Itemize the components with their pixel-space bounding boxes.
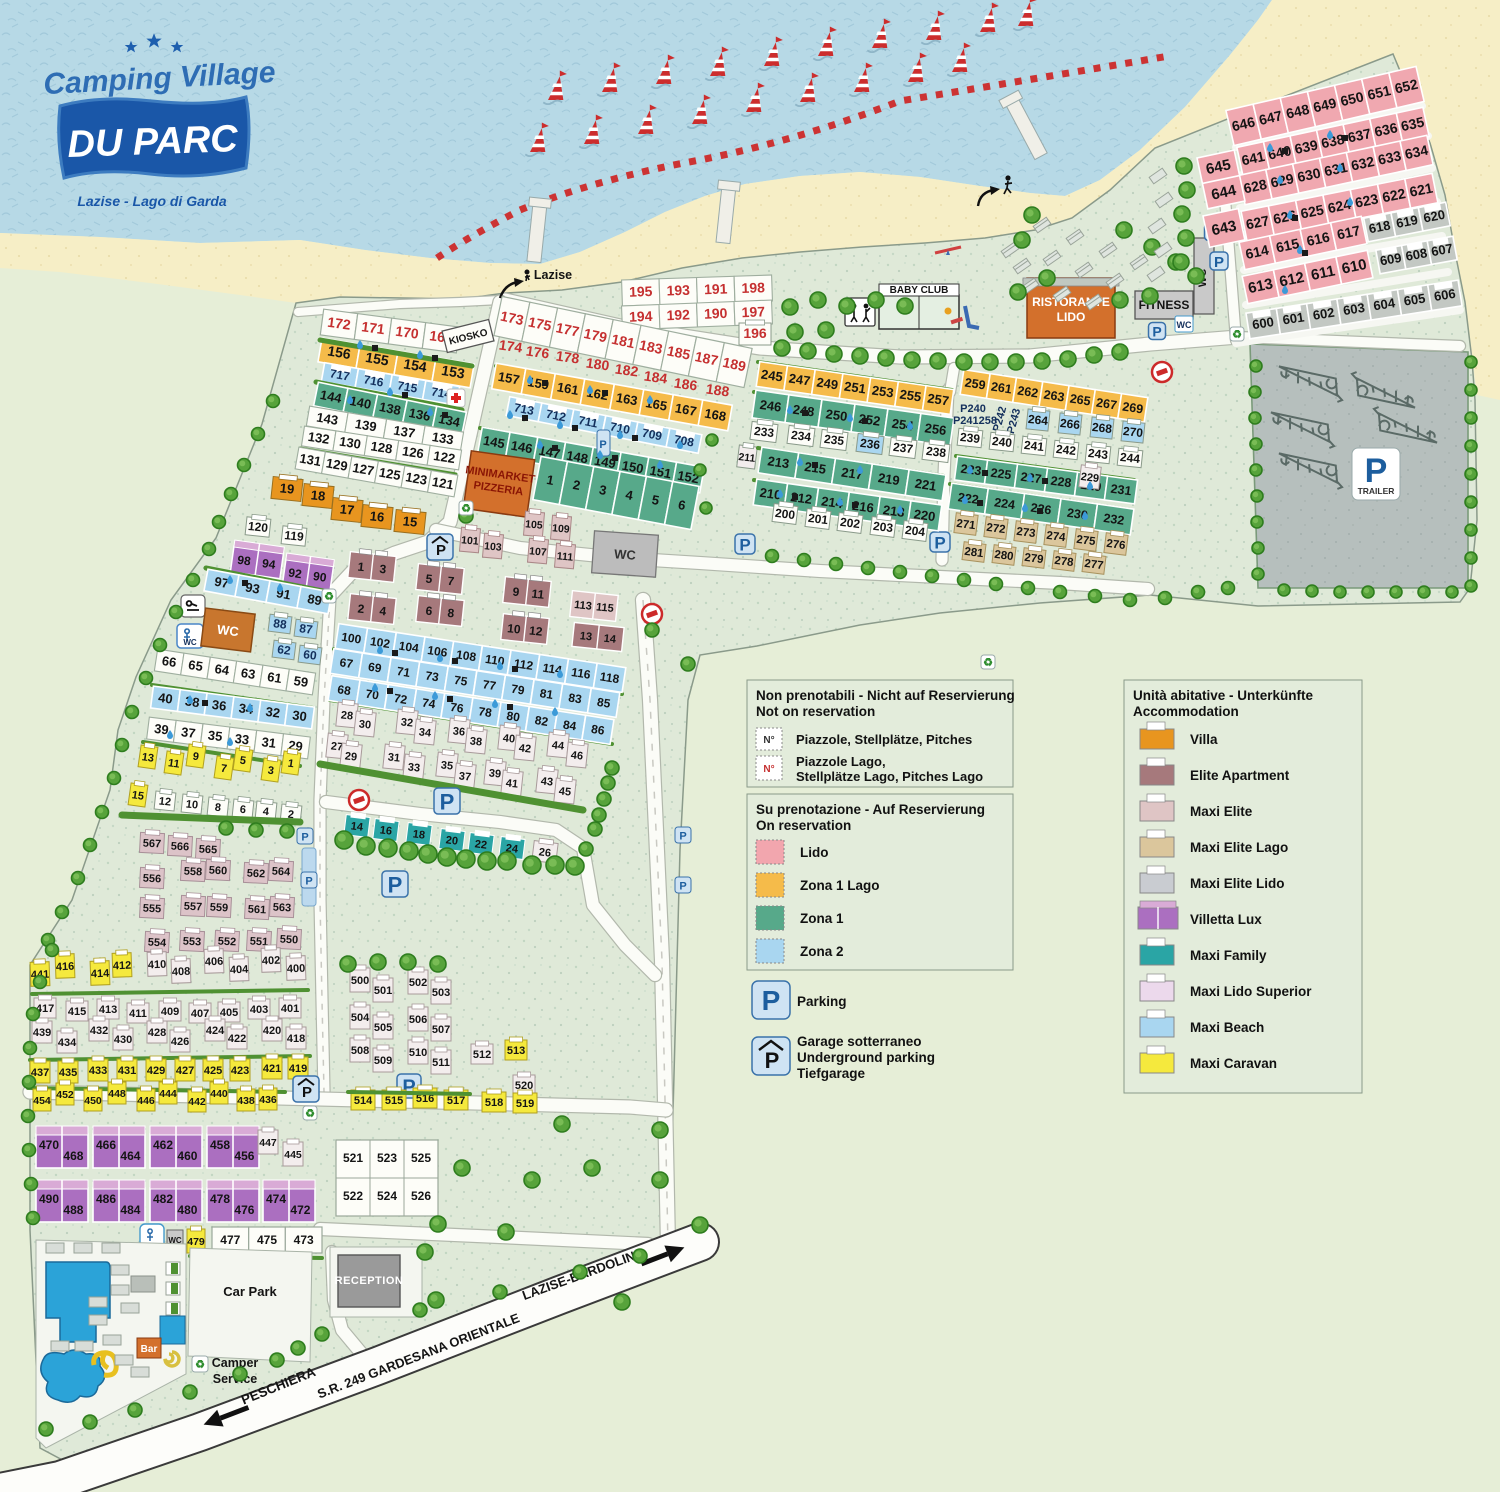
svg-text:478: 478	[210, 1192, 230, 1206]
svg-text:191: 191	[704, 280, 728, 297]
svg-text:412: 412	[113, 960, 132, 973]
svg-text:195: 195	[629, 283, 653, 300]
svg-text:552: 552	[217, 936, 236, 949]
svg-text:406: 406	[205, 956, 224, 969]
svg-text:P: P	[440, 789, 455, 814]
svg-text:204: 204	[904, 523, 926, 539]
svg-text:63: 63	[240, 665, 257, 682]
svg-text:P: P	[765, 1048, 780, 1073]
svg-text:246: 246	[759, 397, 783, 415]
svg-text:78: 78	[477, 704, 493, 720]
svg-text:196: 196	[743, 325, 767, 341]
svg-text:434: 434	[58, 1037, 77, 1049]
svg-text:Underground parking: Underground parking	[797, 1050, 935, 1065]
svg-text:506: 506	[409, 1014, 427, 1026]
svg-text:190: 190	[704, 305, 728, 322]
svg-text:11: 11	[167, 757, 180, 771]
svg-text:513: 513	[507, 1045, 525, 1057]
svg-text:272: 272	[986, 522, 1007, 536]
svg-text:522: 522	[343, 1189, 363, 1203]
svg-text:446: 446	[137, 1095, 155, 1107]
svg-text:Maxi Family: Maxi Family	[1190, 948, 1267, 963]
svg-text:194: 194	[629, 308, 653, 325]
svg-text:257: 257	[926, 391, 950, 409]
svg-text:35: 35	[440, 759, 453, 772]
svg-text:90: 90	[312, 569, 327, 585]
svg-text:P241258: P241258	[953, 415, 997, 427]
svg-text:524: 524	[377, 1189, 397, 1203]
svg-text:10: 10	[185, 798, 198, 811]
svg-text:Elite Apartment: Elite Apartment	[1190, 768, 1290, 783]
svg-text:426: 426	[171, 1036, 189, 1048]
svg-text:251: 251	[843, 379, 867, 397]
svg-text:43: 43	[540, 775, 553, 788]
svg-text:521: 521	[343, 1151, 363, 1165]
svg-text:12: 12	[528, 623, 543, 638]
svg-text:Parking: Parking	[797, 994, 847, 1009]
svg-text:13: 13	[579, 630, 592, 643]
svg-text:19: 19	[279, 480, 295, 496]
svg-text:28: 28	[340, 709, 353, 722]
svg-text:105: 105	[525, 518, 544, 531]
svg-text:450: 450	[84, 1095, 102, 1107]
svg-text:♻: ♻	[195, 1359, 205, 1371]
svg-text:448: 448	[108, 1088, 126, 1100]
svg-text:Zona 2: Zona 2	[800, 944, 844, 959]
svg-text:Car Park: Car Park	[223, 1284, 277, 1299]
svg-text:113: 113	[574, 599, 593, 613]
svg-text:507: 507	[432, 1024, 450, 1036]
svg-text:486: 486	[96, 1192, 116, 1206]
svg-text:N°: N°	[763, 764, 774, 775]
svg-text:P: P	[679, 881, 686, 893]
svg-text:188: 188	[705, 381, 731, 400]
svg-text:WC: WC	[216, 622, 240, 640]
svg-text:Maxi Elite Lago: Maxi Elite Lago	[1190, 840, 1288, 855]
svg-text:81: 81	[539, 686, 555, 702]
svg-text:40: 40	[502, 732, 515, 745]
svg-text:277: 277	[1084, 558, 1105, 572]
svg-text:268: 268	[1091, 420, 1113, 436]
svg-text:192: 192	[666, 306, 690, 323]
svg-text:420: 420	[263, 1025, 281, 1037]
svg-text:466: 466	[96, 1138, 116, 1152]
svg-text:38: 38	[469, 735, 482, 748]
svg-text:76: 76	[449, 700, 465, 716]
svg-text:276: 276	[1106, 538, 1127, 552]
svg-text:421: 421	[263, 1063, 281, 1075]
svg-text:119: 119	[284, 528, 305, 544]
svg-text:N°: N°	[763, 735, 774, 746]
svg-text:454: 454	[33, 1095, 51, 1107]
svg-text:118: 118	[599, 669, 621, 686]
svg-text:405: 405	[220, 1007, 238, 1019]
svg-text:P: P	[1214, 254, 1224, 271]
svg-text:LIDO: LIDO	[1057, 310, 1086, 324]
svg-text:281: 281	[964, 546, 985, 560]
svg-text:201: 201	[807, 511, 829, 527]
svg-text:278: 278	[1054, 555, 1075, 569]
svg-text:Lazise: Lazise	[534, 268, 572, 282]
svg-text:11: 11	[531, 587, 545, 602]
svg-text:563: 563	[272, 902, 291, 915]
svg-text:Maxi Elite Lido: Maxi Elite Lido	[1190, 876, 1285, 891]
svg-text:228: 228	[1050, 474, 1073, 491]
svg-text:77: 77	[482, 677, 498, 693]
svg-text:271: 271	[956, 518, 977, 532]
svg-text:423: 423	[231, 1065, 249, 1077]
svg-text:411: 411	[129, 1008, 147, 1020]
svg-text:473: 473	[294, 1233, 314, 1247]
svg-text:DU PARC: DU PARC	[67, 118, 239, 166]
svg-text:36: 36	[211, 697, 227, 714]
svg-text:109: 109	[552, 522, 571, 535]
svg-text:525: 525	[411, 1151, 431, 1165]
svg-text:404: 404	[230, 964, 250, 977]
svg-text:264: 264	[1027, 412, 1049, 428]
svg-text:32: 32	[265, 704, 281, 721]
svg-text:32: 32	[400, 716, 413, 729]
svg-text:15: 15	[131, 789, 145, 803]
svg-text:101: 101	[461, 534, 480, 547]
svg-text:Lido: Lido	[800, 845, 829, 860]
svg-text:116: 116	[570, 665, 592, 682]
svg-text:555: 555	[142, 903, 161, 916]
svg-text:180: 180	[585, 355, 611, 374]
svg-text:518: 518	[485, 1097, 503, 1109]
svg-text:225: 225	[990, 466, 1013, 483]
svg-text:33: 33	[407, 761, 420, 774]
svg-text:60: 60	[303, 647, 318, 663]
svg-text:410: 410	[148, 959, 167, 972]
svg-text:75: 75	[453, 673, 469, 689]
svg-text:430: 430	[114, 1034, 132, 1046]
svg-text:490: 490	[39, 1192, 59, 1206]
svg-text:232: 232	[1103, 511, 1126, 528]
svg-text:427: 427	[176, 1065, 194, 1077]
svg-text:172: 172	[326, 314, 351, 333]
svg-text:30: 30	[358, 718, 371, 731]
svg-text:66: 66	[161, 653, 178, 670]
svg-text:18: 18	[412, 828, 426, 841]
svg-text:♻: ♻	[461, 503, 471, 515]
svg-text:407: 407	[191, 1008, 209, 1020]
svg-text:72: 72	[393, 691, 409, 707]
svg-text:WC: WC	[1177, 320, 1192, 330]
svg-text:559: 559	[209, 902, 228, 915]
svg-text:12: 12	[158, 795, 171, 808]
svg-text:235: 235	[823, 432, 845, 448]
svg-text:15: 15	[402, 513, 418, 529]
svg-text:565: 565	[198, 844, 217, 857]
svg-text:275: 275	[1076, 534, 1097, 548]
svg-text:211: 211	[738, 451, 756, 465]
svg-text:408: 408	[172, 966, 191, 979]
svg-text:40: 40	[157, 690, 173, 707]
svg-text:413: 413	[99, 1004, 117, 1016]
svg-text:274: 274	[1046, 530, 1067, 544]
svg-text:82: 82	[534, 713, 550, 729]
svg-text:P: P	[1152, 323, 1161, 339]
svg-text:80: 80	[506, 709, 522, 725]
svg-text:P: P	[679, 831, 686, 843]
svg-text:557: 557	[183, 901, 202, 914]
svg-text:419: 419	[289, 1063, 307, 1075]
svg-text:31: 31	[387, 751, 400, 764]
svg-text:476: 476	[234, 1203, 254, 1217]
svg-text:236: 236	[859, 436, 881, 452]
svg-text:500: 500	[351, 975, 369, 987]
svg-text:243: 243	[1087, 446, 1109, 462]
svg-text:456: 456	[234, 1149, 254, 1163]
svg-text:68: 68	[336, 682, 352, 698]
svg-text:On reservation: On reservation	[756, 818, 851, 833]
svg-text:252: 252	[858, 411, 882, 429]
svg-text:Maxi Elite: Maxi Elite	[1190, 804, 1253, 819]
svg-text:244: 244	[1119, 450, 1141, 466]
svg-text:35: 35	[207, 728, 223, 745]
svg-text:P: P	[762, 985, 781, 1016]
svg-text:18: 18	[310, 487, 326, 503]
svg-text:6: 6	[239, 804, 246, 817]
svg-text:92: 92	[287, 566, 302, 582]
svg-text:444: 444	[159, 1088, 177, 1100]
svg-text:480: 480	[177, 1203, 197, 1217]
svg-text:550: 550	[279, 934, 298, 947]
svg-text:488: 488	[63, 1203, 83, 1217]
svg-text:Piazzole Lago,: Piazzole Lago,	[796, 754, 886, 769]
svg-text:178: 178	[555, 348, 581, 367]
svg-text:414: 414	[91, 968, 111, 981]
svg-text:193: 193	[666, 282, 690, 299]
svg-text:558: 558	[183, 866, 202, 879]
svg-text:83: 83	[567, 690, 583, 706]
svg-text:409: 409	[161, 1006, 179, 1018]
svg-text:436: 436	[259, 1094, 277, 1106]
svg-text:61: 61	[266, 669, 283, 686]
svg-text:88: 88	[273, 616, 288, 632]
svg-text:♻: ♻	[983, 657, 993, 669]
svg-text:526: 526	[411, 1189, 431, 1203]
svg-text:46: 46	[570, 749, 583, 762]
svg-text:241: 241	[1023, 438, 1045, 454]
svg-text:197: 197	[741, 303, 765, 320]
svg-text:239: 239	[959, 430, 981, 446]
svg-text:462: 462	[153, 1138, 173, 1152]
svg-text:514: 514	[354, 1095, 373, 1107]
svg-text:29: 29	[344, 750, 357, 763]
svg-text:Tiefgarage: Tiefgarage	[797, 1066, 866, 1081]
svg-text:400: 400	[287, 963, 306, 976]
svg-text:200: 200	[774, 506, 796, 522]
svg-text:89: 89	[306, 591, 323, 608]
svg-text:34: 34	[418, 726, 432, 739]
svg-text:280: 280	[994, 549, 1015, 563]
svg-text:31: 31	[261, 734, 277, 751]
svg-text:Maxi Beach: Maxi Beach	[1190, 1020, 1264, 1035]
svg-text:P: P	[302, 1084, 312, 1101]
svg-text:P: P	[599, 439, 606, 451]
svg-text:256: 256	[924, 420, 948, 438]
svg-text:416: 416	[56, 961, 75, 974]
svg-text:65: 65	[187, 657, 204, 674]
svg-text:WC: WC	[183, 638, 197, 647]
svg-text:171: 171	[360, 318, 385, 337]
svg-text:401: 401	[281, 1003, 299, 1015]
svg-text:42: 42	[518, 742, 531, 755]
svg-text:554: 554	[147, 937, 167, 950]
svg-text:273: 273	[1016, 526, 1037, 540]
svg-text:231: 231	[1110, 482, 1133, 499]
svg-text:255: 255	[899, 387, 923, 405]
svg-text:517: 517	[447, 1095, 465, 1107]
svg-text:502: 502	[409, 977, 427, 989]
svg-text:13: 13	[141, 751, 155, 765]
svg-text:20: 20	[445, 834, 459, 847]
svg-text:564: 564	[271, 866, 291, 879]
svg-text:30: 30	[291, 707, 307, 724]
svg-text:TRAILER: TRAILER	[1358, 486, 1395, 496]
svg-text:P: P	[934, 533, 945, 552]
svg-text:403: 403	[250, 1004, 268, 1016]
svg-text:♻: ♻	[1232, 329, 1242, 341]
svg-text:37: 37	[458, 770, 471, 783]
svg-text:484: 484	[120, 1203, 140, 1217]
svg-text:41: 41	[505, 777, 518, 790]
svg-text:182: 182	[614, 361, 640, 380]
svg-text:39: 39	[488, 767, 501, 780]
svg-text:505: 505	[374, 1022, 392, 1034]
svg-text:184: 184	[643, 368, 669, 387]
svg-text:69: 69	[367, 660, 383, 676]
svg-text:562: 562	[246, 868, 265, 881]
svg-text:16: 16	[379, 824, 393, 837]
svg-text:561: 561	[247, 904, 266, 917]
svg-text:468: 468	[63, 1149, 83, 1163]
svg-text:438: 438	[237, 1095, 255, 1107]
svg-text:249: 249	[816, 375, 840, 393]
svg-text:440: 440	[210, 1088, 228, 1100]
svg-text:270: 270	[1122, 424, 1144, 440]
svg-text:439: 439	[33, 1027, 51, 1039]
svg-text:240: 240	[991, 434, 1013, 450]
svg-text:512: 512	[473, 1049, 491, 1061]
svg-text:22: 22	[474, 838, 488, 851]
svg-text:Piazzole, Stellplätze, Pitches: Piazzole, Stellplätze, Pitches	[796, 732, 972, 747]
svg-text:94: 94	[261, 556, 276, 572]
svg-text:472: 472	[290, 1203, 310, 1217]
svg-text:508: 508	[351, 1045, 369, 1057]
svg-text:14: 14	[350, 820, 364, 834]
svg-text:253: 253	[871, 383, 895, 401]
svg-text:429: 429	[147, 1065, 165, 1077]
svg-text:10: 10	[507, 621, 522, 636]
svg-text:P240: P240	[960, 403, 986, 415]
svg-text:556: 556	[142, 873, 161, 886]
svg-text:418: 418	[287, 1033, 305, 1045]
svg-text:233: 233	[753, 424, 775, 440]
svg-text:P: P	[301, 832, 308, 844]
svg-text:Unità abitative - Unterkünfte: Unità abitative - Unterkünfte	[1133, 688, 1314, 703]
svg-text:222: 222	[957, 490, 980, 507]
svg-text:509: 509	[374, 1055, 392, 1067]
svg-text:P: P	[388, 872, 403, 897]
svg-text:Maxi Lido Superior: Maxi Lido Superior	[1190, 984, 1312, 999]
svg-text:560: 560	[208, 865, 227, 878]
svg-text:198: 198	[741, 279, 765, 296]
svg-text:107: 107	[529, 545, 548, 558]
svg-text:474: 474	[266, 1192, 286, 1206]
svg-text:433: 433	[89, 1065, 107, 1077]
svg-text:98: 98	[236, 553, 251, 569]
svg-text:279: 279	[1024, 552, 1045, 566]
svg-text:115: 115	[595, 601, 614, 615]
svg-text:515: 515	[385, 1095, 403, 1107]
svg-text:Non prenotabili - Nicht auf Re: Non prenotabili - Nicht auf Reservierung	[756, 688, 1015, 703]
svg-text:247: 247	[788, 371, 812, 389]
svg-text:432: 432	[90, 1025, 108, 1037]
svg-text:176: 176	[525, 343, 551, 362]
svg-text:Lazise - Lago di Garda: Lazise - Lago di Garda	[77, 193, 227, 209]
svg-text:415: 415	[68, 1006, 86, 1018]
svg-text:85: 85	[596, 695, 612, 711]
svg-text:86: 86	[590, 722, 606, 738]
svg-text:62: 62	[277, 642, 292, 658]
svg-text:519: 519	[516, 1098, 534, 1110]
svg-text:237: 237	[892, 440, 914, 456]
svg-text:470: 470	[39, 1138, 59, 1152]
svg-text:566: 566	[170, 841, 189, 854]
svg-text:445: 445	[284, 1149, 302, 1161]
svg-text:425: 425	[204, 1065, 222, 1077]
svg-text:Zona 1 Lago: Zona 1 Lago	[800, 878, 880, 893]
svg-text:36: 36	[452, 725, 465, 738]
svg-text:553: 553	[182, 936, 201, 949]
svg-text:Zona 1: Zona 1	[800, 911, 844, 926]
svg-text:452: 452	[56, 1089, 74, 1101]
svg-text:103: 103	[484, 540, 503, 553]
svg-text:73: 73	[424, 668, 440, 684]
svg-text:503: 503	[432, 987, 450, 999]
svg-text:Bar: Bar	[141, 1344, 158, 1355]
svg-text:422: 422	[228, 1033, 246, 1045]
svg-text:501: 501	[374, 985, 392, 997]
svg-text:8: 8	[214, 802, 221, 815]
svg-text:482: 482	[153, 1192, 173, 1206]
svg-text:33: 33	[234, 731, 250, 748]
svg-text:P: P	[305, 876, 312, 888]
svg-text:431: 431	[118, 1065, 136, 1077]
svg-text:504: 504	[351, 1012, 370, 1024]
svg-text:458: 458	[210, 1138, 230, 1152]
svg-text:479: 479	[187, 1236, 205, 1248]
svg-text:79: 79	[510, 682, 526, 698]
svg-text:Camper: Camper	[212, 1356, 259, 1370]
svg-text:16: 16	[369, 508, 385, 524]
svg-text:120: 120	[247, 519, 269, 535]
svg-text:59: 59	[293, 673, 310, 690]
svg-text:Not on reservation: Not on reservation	[756, 704, 875, 719]
svg-text:P: P	[739, 535, 750, 554]
svg-text:424: 424	[206, 1025, 225, 1037]
svg-text:67: 67	[339, 655, 355, 671]
svg-text:242: 242	[1055, 442, 1077, 458]
svg-text:428: 428	[148, 1027, 166, 1039]
svg-text:♻: ♻	[305, 1108, 315, 1120]
svg-text:♻: ♻	[324, 591, 334, 603]
svg-text:Stellplätze Lago, Pitches Lago: Stellplätze Lago, Pitches Lago	[796, 769, 983, 784]
svg-text:510: 510	[409, 1047, 427, 1059]
